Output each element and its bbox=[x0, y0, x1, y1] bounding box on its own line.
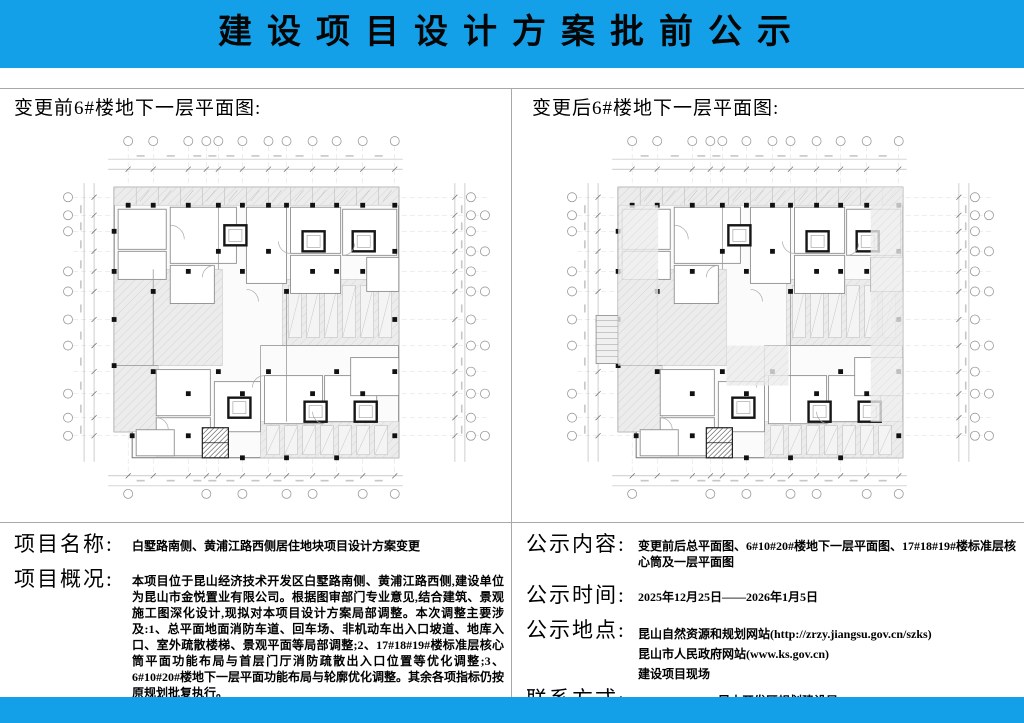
project-overview-label: 项目概况: bbox=[14, 565, 132, 593]
notice-info-section: 公示内容: 变更前后总平面图、6#10#20#楼地下一层平面图、17#18#19… bbox=[526, 530, 1020, 713]
header-banner: 建设项目设计方案批前公示 bbox=[0, 0, 1024, 68]
floorplan-before-drawing bbox=[56, 129, 502, 518]
project-name-value: 白墅路南侧、黄浦江路西侧居住地块项目设计方案变更 bbox=[132, 530, 504, 554]
project-info-section: 项目名称: 白墅路南侧、黄浦江路西侧居住地块项目设计方案变更 项目概况: 本项目… bbox=[14, 530, 508, 701]
mid-divider bbox=[0, 522, 1024, 523]
notice-place-line1: 昆山自然资源和规划网站(http://zrzy.jiangsu.gov.cn/s… bbox=[638, 624, 1016, 644]
notice-page: 建设项目设计方案批前公示 变更前6#楼地下一层平面图: 变更后6#楼地下一层平面… bbox=[0, 0, 1024, 723]
notice-place-row: 公示地点: 昆山自然资源和规划网站(http://zrzy.jiangsu.go… bbox=[526, 616, 1020, 684]
top-divider bbox=[0, 88, 1024, 89]
project-overview-row: 项目概况: 本项目位于昆山经济技术开发区白墅路南侧、黄浦江路西侧,建设单位为昆山… bbox=[14, 565, 508, 701]
notice-place-line3: 建设项目现场 bbox=[638, 664, 1016, 684]
notice-time-label: 公示时间: bbox=[526, 581, 638, 609]
notice-content-row: 公示内容: 变更前后总平面图、6#10#20#楼地下一层平面图、17#18#19… bbox=[526, 530, 1020, 570]
project-name-label: 项目名称: bbox=[14, 530, 132, 558]
notice-content-label: 公示内容: bbox=[526, 530, 638, 558]
floorplan-after-drawing bbox=[560, 129, 1006, 518]
project-name-row: 项目名称: 白墅路南侧、黄浦江路西侧居住地块项目设计方案变更 bbox=[14, 530, 508, 558]
panel-divider bbox=[511, 88, 512, 697]
project-overview-value: 本项目位于昆山经济技术开发区白墅路南侧、黄浦江路西侧,建设单位为昆山市金悦置业有… bbox=[132, 565, 504, 701]
notice-time-value: 2025年12月25日——2026年1月5日 bbox=[638, 581, 1016, 605]
notice-place-label: 公示地点: bbox=[526, 616, 638, 644]
notice-place-line2: 昆山市人民政府网站(www.ks.gov.cn) bbox=[638, 644, 1016, 664]
page-title: 建设项目设计方案批前公示 bbox=[0, 0, 1024, 68]
notice-time-row: 公示时间: 2025年12月25日——2026年1月5日 bbox=[526, 581, 1020, 609]
notice-content-value: 变更前后总平面图、6#10#20#楼地下一层平面图、17#18#19#楼标准层核… bbox=[638, 530, 1016, 570]
caption-after: 变更后6#楼地下一层平面图: bbox=[532, 93, 779, 120]
footer-bar bbox=[0, 697, 1024, 723]
caption-before: 变更前6#楼地下一层平面图: bbox=[14, 93, 261, 120]
notice-place-value: 昆山自然资源和规划网站(http://zrzy.jiangsu.gov.cn/s… bbox=[638, 616, 1016, 684]
